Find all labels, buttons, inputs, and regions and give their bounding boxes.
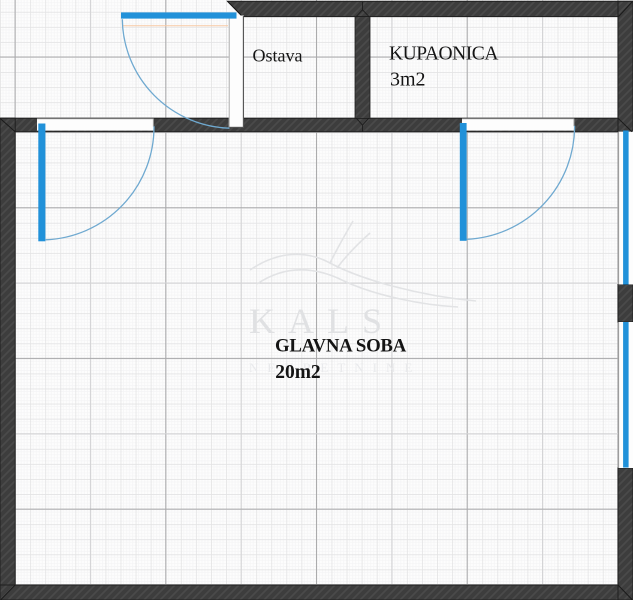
svg-text:KUPAONICA: KUPAONICA	[389, 43, 498, 64]
svg-text:Ostava: Ostava	[253, 46, 303, 66]
svg-text:3m2: 3m2	[390, 68, 426, 90]
svg-text:GLAVNA SOBA: GLAVNA SOBA	[275, 336, 407, 357]
svg-text:20m2: 20m2	[275, 362, 321, 383]
